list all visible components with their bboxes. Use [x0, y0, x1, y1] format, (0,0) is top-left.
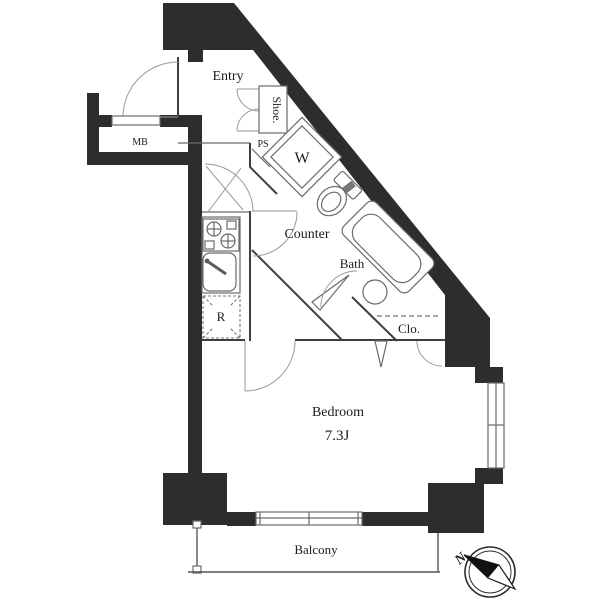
wall-bottom-left: [227, 512, 256, 526]
label-shoe: Shoe.: [270, 97, 284, 124]
exterior-walls: [87, 3, 503, 533]
step-right-upper: [475, 367, 503, 383]
label-mb: MB: [132, 137, 148, 148]
mb-wall-stub: [87, 115, 112, 127]
label-fridge: R: [217, 309, 226, 324]
label-counter: Counter: [284, 227, 329, 242]
shoe-door-arc-bottom: [237, 109, 259, 131]
hall-door-arc: [205, 164, 253, 212]
shoe-door-arc-top: [237, 89, 259, 111]
kitchen-sink: [203, 253, 236, 291]
bath-door-leaf: [312, 275, 349, 310]
label-bedroom: Bedroom: [312, 405, 364, 420]
label-bedroom-size: 7.3J: [325, 428, 350, 444]
label-balcony: Balcony: [294, 542, 338, 557]
bath-basin: [363, 280, 387, 304]
floor-plan: N Entry Shoe. MB PS W Counter Bath Clo. …: [0, 0, 600, 600]
window-right: [488, 383, 504, 468]
closet-door-arc: [417, 341, 442, 366]
label-ps: PS: [257, 139, 268, 150]
wall-bottom-right: [362, 512, 430, 526]
stove: [203, 219, 239, 251]
mb-door: [112, 116, 160, 125]
label-washer: W: [294, 150, 310, 167]
diagonal-wall: [163, 3, 490, 367]
label-entry: Entry: [212, 69, 243, 84]
pillar-bottom-right: [428, 483, 484, 533]
pillar-bottom-left: [163, 473, 227, 525]
compass: N: [451, 547, 515, 597]
floorplan-page: N Entry Shoe. MB PS W Counter Bath Clo. …: [0, 0, 600, 600]
closet-door-wedge: [375, 341, 387, 367]
label-closet: Clo.: [398, 321, 420, 336]
wall-stub-top: [188, 50, 203, 62]
window-balcony: [256, 512, 362, 525]
mb-wall-bottom: [87, 152, 202, 165]
entry-door-arc: [123, 62, 178, 117]
left-wall: [188, 115, 202, 473]
step-right-lower: [475, 468, 503, 484]
label-bath: Bath: [340, 256, 365, 271]
bedroom-door-arc: [245, 341, 295, 391]
